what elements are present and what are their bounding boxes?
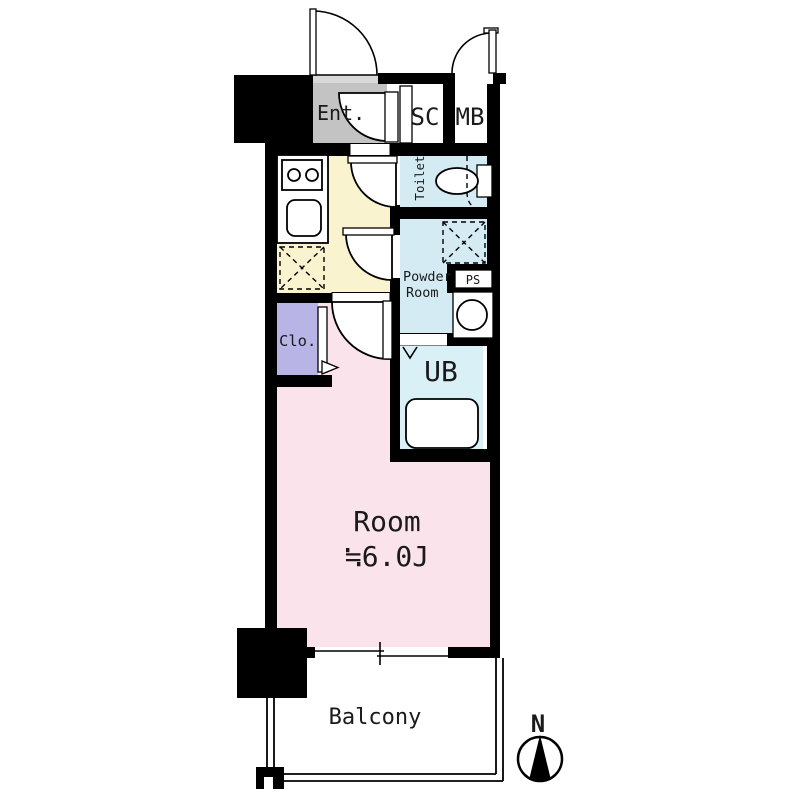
entrance-step [313,75,378,83]
unit-bath-label: UB [424,355,458,388]
compass: N [518,710,562,781]
toilet-tank-icon [477,165,492,197]
powder-room-label-line2: Room [406,285,439,301]
floor-plan-canvas: Ent. SC MB Toilet Powder Room PS UB Clo.… [0,0,800,800]
entrance-door-swing-icon [313,11,377,75]
entrance-hall-doorway [350,144,390,156]
powder-room-door-leaf-icon [343,228,394,235]
wall-sc-mb-divider [443,84,455,143]
wall-right-lower [490,462,500,658]
wall-under-entrance [265,143,350,156]
toilet-label: Toilet [412,155,427,200]
railing-post-notch [264,777,273,789]
closet-label: Clo. [279,332,316,350]
shoe-closet-label: SC [411,103,440,131]
room-size-label: ≒6.0J [345,540,429,573]
balcony-label: Balcony [329,705,422,730]
mail-box-label: MB [456,103,485,131]
room-doorway-threshold [332,293,390,303]
washing-machine-icon [457,300,487,330]
wall-ub-bottom [390,449,500,462]
bathtub-icon [406,399,478,448]
mailbox-door-leaf-icon [489,30,496,73]
wall-top-left-block [234,75,313,143]
wall-closet-top [265,293,332,303]
stove-burner-icon [288,169,300,181]
exterior-doors [310,9,498,75]
wall-top-mid [378,73,455,84]
toilet-door-leaf-icon [348,156,397,163]
wall-bottom-right [448,647,500,658]
room-label: Room [353,505,420,538]
pillar [237,628,307,698]
wall-top-right [493,73,506,84]
toilet-bowl-icon [436,168,478,194]
pipe-space-label: PS [466,273,480,287]
wall-left [265,143,277,648]
unit-bath-doorway [400,334,447,346]
mailbox-door-swing-icon [452,33,492,73]
room-door-leaf-icon [383,301,392,359]
wall-toilet-powder [390,207,500,219]
stove-burner-icon [306,169,318,181]
entrance-label: Ent. [317,101,365,125]
powder-room-label-line1: Powder [403,269,452,285]
sink-icon [287,200,321,236]
entrance-interior-door-leaf-icon [385,92,398,142]
wall-under-sc-mb [390,143,500,156]
wall-closet-bottom [265,375,332,387]
wall-bottom-notch [307,647,315,658]
floor-plan: Ent. SC MB Toilet Powder Room PS UB Clo.… [0,0,800,800]
compass-north-label: N [531,710,545,738]
entrance-door-leaf-icon [310,9,316,75]
